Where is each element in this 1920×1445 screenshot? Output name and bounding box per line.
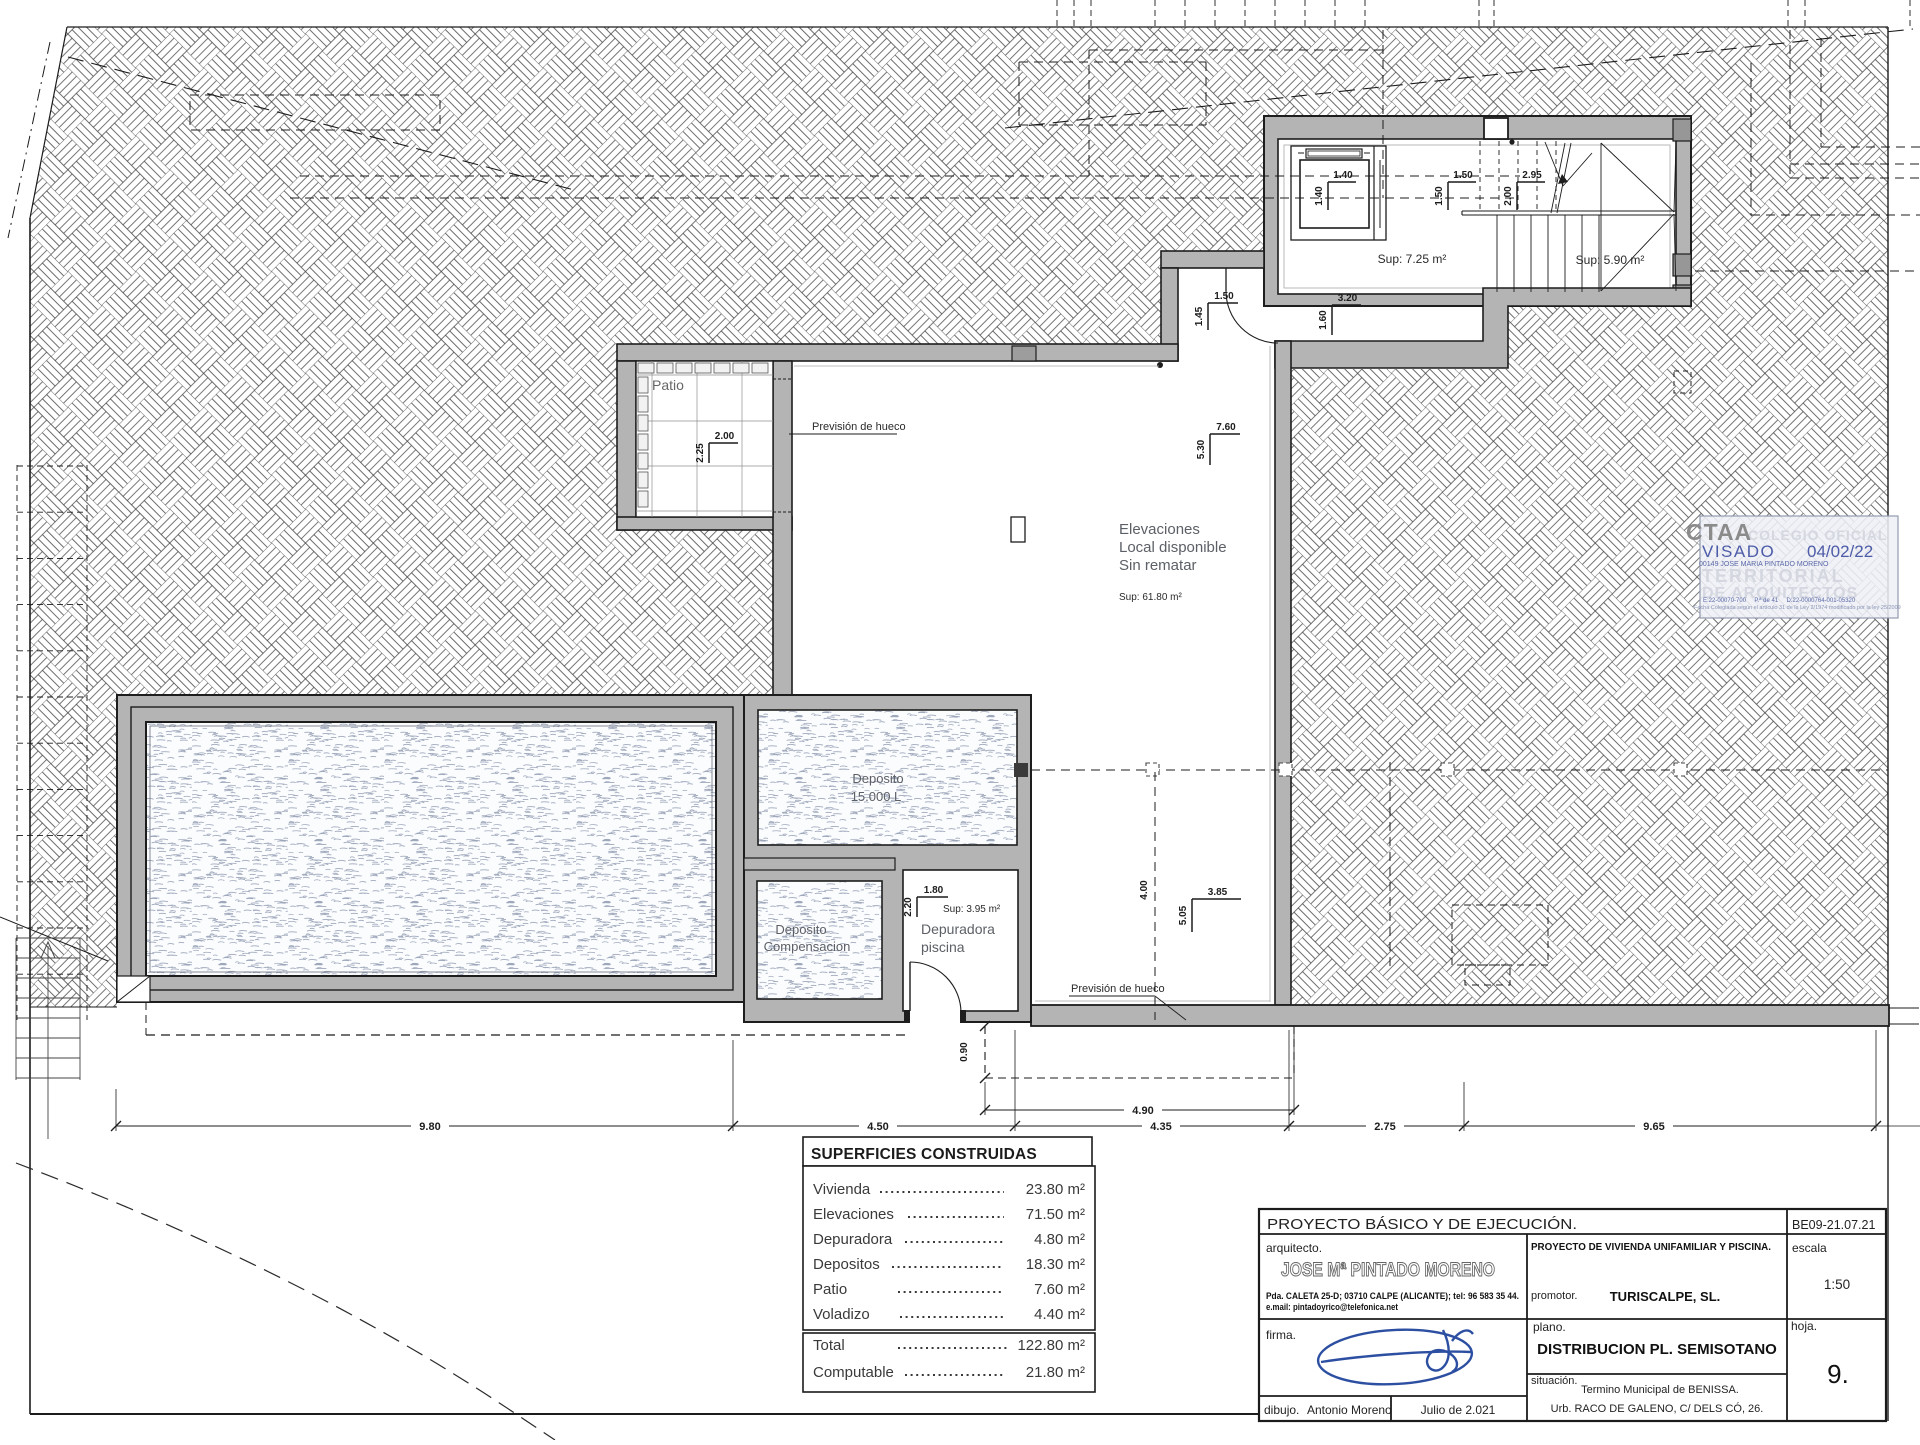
svg-text:1.60: 1.60 — [1318, 310, 1329, 330]
svg-text:1.45: 1.45 — [1194, 306, 1205, 326]
svg-text:Sup: 3.95 m²: Sup: 3.95 m² — [943, 904, 1001, 915]
svg-text:1.50: 1.50 — [1214, 291, 1234, 302]
svg-text:21.80 m²: 21.80 m² — [1026, 1364, 1085, 1381]
svg-text:7.60 m²: 7.60 m² — [1034, 1281, 1085, 1298]
svg-text:00149 JOSE MARIA PINTADO MOREN: 00149 JOSE MARIA PINTADO MORENO — [1699, 561, 1829, 568]
svg-text:Previsión de hueco: Previsión de hueco — [812, 421, 906, 433]
svg-text:E:22-00070-700 P.ª de 41: E:22-00070-700 P.ª de 41 D:22-0000764-00… — [1703, 597, 1856, 604]
svg-text:4.40 m²: 4.40 m² — [1034, 1306, 1085, 1323]
svg-text:7.60: 7.60 — [1216, 422, 1236, 433]
svg-text:1.40: 1.40 — [1314, 186, 1325, 206]
svg-text:Depositos: Depositos — [813, 1256, 880, 1273]
svg-text:VISADO: VISADO — [1702, 542, 1775, 561]
svg-text:arquitecto.: arquitecto. — [1266, 1241, 1322, 1255]
svg-text:2.00: 2.00 — [715, 431, 735, 442]
svg-text:Previsión de hueco: Previsión de hueco — [1071, 983, 1165, 995]
svg-text:TERRITORIAL: TERRITORIAL — [1702, 566, 1845, 586]
svg-text:Antonio Moreno: Antonio Moreno — [1307, 1403, 1392, 1417]
svg-text:Fecha Colegiada según el artíc: Fecha Colegiada según el artículo 31 de … — [1694, 605, 1901, 611]
svg-text:piscina: piscina — [921, 939, 965, 955]
svg-text:1:50: 1:50 — [1824, 1277, 1850, 1292]
svg-text:71.50 m²: 71.50 m² — [1026, 1206, 1085, 1223]
svg-text:0.90: 0.90 — [959, 1042, 970, 1062]
svg-text:Local disponible: Local disponible — [1119, 539, 1227, 556]
svg-text:9.80: 9.80 — [419, 1121, 440, 1133]
svg-text:5.05: 5.05 — [1178, 905, 1189, 925]
svg-text:Sup: 5.90 m²: Sup: 5.90 m² — [1576, 253, 1645, 267]
svg-text:Voladizo: Voladizo — [813, 1306, 870, 1323]
svg-text:Total: Total — [813, 1337, 845, 1354]
svg-text:2.95: 2.95 — [1522, 170, 1542, 181]
svg-text:1.40: 1.40 — [1333, 170, 1353, 181]
svg-text:1.50: 1.50 — [1453, 170, 1473, 181]
svg-text:9.: 9. — [1827, 1359, 1849, 1389]
svg-text:04/02/22: 04/02/22 — [1807, 542, 1873, 561]
svg-text:DISTRIBUCION PL. SEMISOTANO: DISTRIBUCION PL. SEMISOTANO — [1537, 1341, 1777, 1358]
svg-text:Pda. CALETA 25-D; 03710 CA: Pda. CALETA 25-D; 03710 CALPE (ALICANTE)… — [1266, 1291, 1519, 1302]
svg-text:SUPERFICIES CONSTRUIDAS: SUPERFICIES CONSTRUIDAS — [811, 1146, 1037, 1163]
svg-text:firma.: firma. — [1266, 1328, 1296, 1342]
svg-text:4.90: 4.90 — [1132, 1105, 1153, 1117]
svg-text:Patio: Patio — [652, 377, 684, 393]
svg-text:hoja.: hoja. — [1791, 1319, 1817, 1333]
svg-text:Vivienda: Vivienda — [813, 1181, 871, 1198]
svg-text:Depuradora: Depuradora — [813, 1231, 893, 1248]
svg-text:Termino Municipal de BENISS: Termino Municipal de BENISSA. — [1581, 1384, 1739, 1396]
svg-text:Deposito: Deposito — [852, 771, 903, 786]
svg-text:1.50: 1.50 — [1434, 186, 1445, 206]
svg-text:122.80 m²: 122.80 m² — [1017, 1337, 1085, 1354]
svg-text:Patio: Patio — [813, 1281, 847, 1298]
svg-text:2.20: 2.20 — [903, 897, 914, 917]
svg-text:23.80 m²: 23.80 m² — [1026, 1181, 1085, 1198]
svg-text:Elevaciones: Elevaciones — [1119, 521, 1200, 538]
svg-text:Sup: 7.25 m²: Sup: 7.25 m² — [1378, 252, 1447, 266]
svg-text:Julio de 2.021: Julio de 2.021 — [1421, 1403, 1496, 1417]
svg-text:plano.: plano. — [1533, 1320, 1566, 1334]
svg-text:4.00: 4.00 — [1139, 880, 1150, 900]
svg-text:4.80 m²: 4.80 m² — [1034, 1231, 1085, 1248]
svg-text:2.75: 2.75 — [1374, 1121, 1395, 1133]
svg-text:5.30: 5.30 — [1196, 439, 1207, 459]
svg-text:Sin rematar: Sin rematar — [1119, 557, 1197, 574]
svg-text:promotor.: promotor. — [1531, 1290, 1577, 1302]
svg-text:3.85: 3.85 — [1208, 887, 1228, 898]
svg-text:COLEGIO OFICIAL: COLEGIO OFICIAL — [1748, 527, 1887, 543]
svg-text:2.25: 2.25 — [695, 443, 706, 463]
svg-text:2.00: 2.00 — [1503, 186, 1514, 206]
svg-text:dibujo.: dibujo. — [1264, 1403, 1299, 1417]
svg-text:Depuradora: Depuradora — [921, 921, 995, 937]
svg-text:PROYECTO DE VIVIENDA UNIFAM: PROYECTO DE VIVIENDA UNIFAMILIAR Y PISCI… — [1531, 1241, 1771, 1253]
svg-text:4.50: 4.50 — [867, 1121, 888, 1133]
svg-text:Urb. RACO DE GALENO, C/ D: Urb. RACO DE GALENO, C/ DELS CÓ, 26. — [1551, 1402, 1764, 1415]
svg-text:Sup: 61.80 m²: Sup: 61.80 m² — [1119, 592, 1182, 603]
svg-text:Deposito: Deposito — [775, 922, 826, 937]
svg-text:BE09-21.07.21: BE09-21.07.21 — [1792, 1218, 1875, 1232]
svg-text:JOSE Mª PINTADO MORENO: JOSE Mª PINTADO MORENO — [1281, 1260, 1495, 1281]
svg-text:15.000 L: 15.000 L — [851, 789, 902, 804]
svg-text:e.mail: pintadoyrico@telefoni: e.mail: pintadoyrico@telefonica.net — [1266, 1302, 1399, 1313]
svg-text:18.30 m²: 18.30 m² — [1026, 1256, 1085, 1273]
svg-text:4.35: 4.35 — [1150, 1121, 1171, 1133]
svg-text:TURISCALPE, SL.: TURISCALPE, SL. — [1610, 1289, 1721, 1304]
svg-text:3.20: 3.20 — [1338, 293, 1358, 304]
svg-text:Compensacion: Compensacion — [764, 939, 851, 954]
svg-text:PROYECTO BÁSICO Y DE EJECU: PROYECTO BÁSICO Y DE EJECUCIÓN. — [1267, 1216, 1577, 1233]
svg-text:Elevaciones: Elevaciones — [813, 1206, 894, 1223]
svg-text:situación.: situación. — [1531, 1375, 1577, 1387]
svg-text:9.65: 9.65 — [1643, 1121, 1664, 1133]
svg-text:escala: escala — [1792, 1241, 1827, 1255]
svg-text:Computable: Computable — [813, 1364, 894, 1381]
svg-text:1.80: 1.80 — [924, 885, 944, 896]
